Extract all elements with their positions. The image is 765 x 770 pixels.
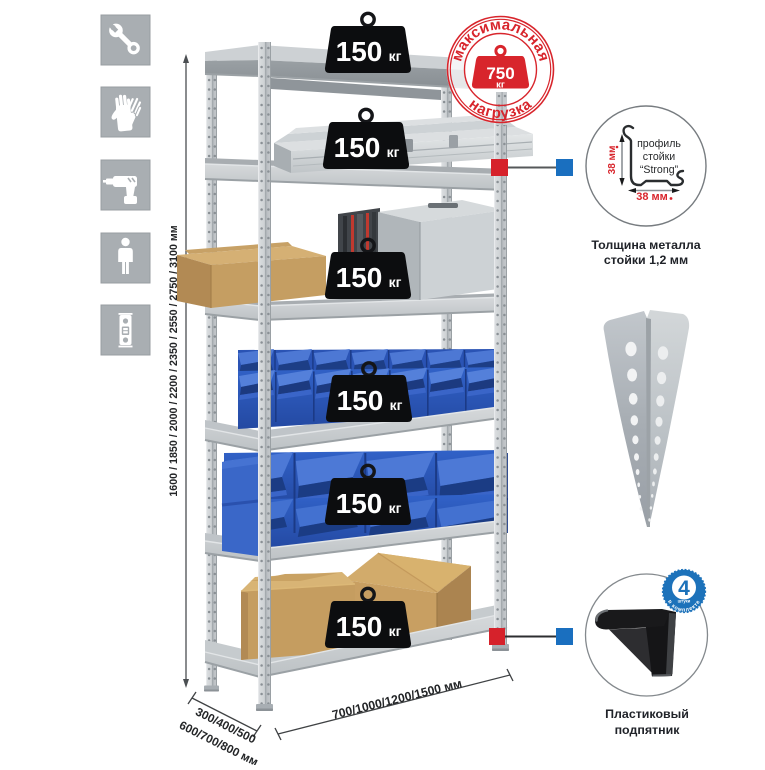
svg-text:кг: кг: [496, 80, 505, 91]
svg-text:“Strong”: “Strong”: [640, 164, 679, 176]
svg-text:150: 150: [336, 488, 383, 519]
svg-text:кг: кг: [390, 397, 403, 413]
svg-text:кг: кг: [389, 500, 402, 516]
svg-text:штуки: штуки: [678, 599, 691, 604]
svg-text:кг: кг: [389, 274, 402, 290]
svg-text:кг: кг: [389, 623, 402, 639]
svg-text:150: 150: [336, 36, 383, 67]
svg-text:150: 150: [337, 385, 384, 416]
svg-text:38 мм: 38 мм: [636, 191, 668, 203]
svg-text:стойки: стойки: [643, 151, 675, 163]
svg-text:Пластиковый: Пластиковый: [605, 707, 689, 721]
svg-text:38 мм: 38 мм: [607, 146, 618, 175]
svg-text:150: 150: [334, 132, 381, 163]
svg-text:стойки 1,2 мм: стойки 1,2 мм: [604, 253, 688, 267]
svg-text:кг: кг: [387, 144, 400, 160]
svg-text:профиль: профиль: [637, 138, 681, 150]
svg-text:подпятник: подпятник: [615, 723, 681, 737]
svg-text:Толщина металла: Толщина металла: [591, 238, 700, 252]
svg-text:4: 4: [678, 577, 690, 600]
svg-text:150: 150: [336, 262, 383, 293]
svg-text:150: 150: [336, 611, 383, 642]
svg-text:кг: кг: [389, 48, 402, 64]
